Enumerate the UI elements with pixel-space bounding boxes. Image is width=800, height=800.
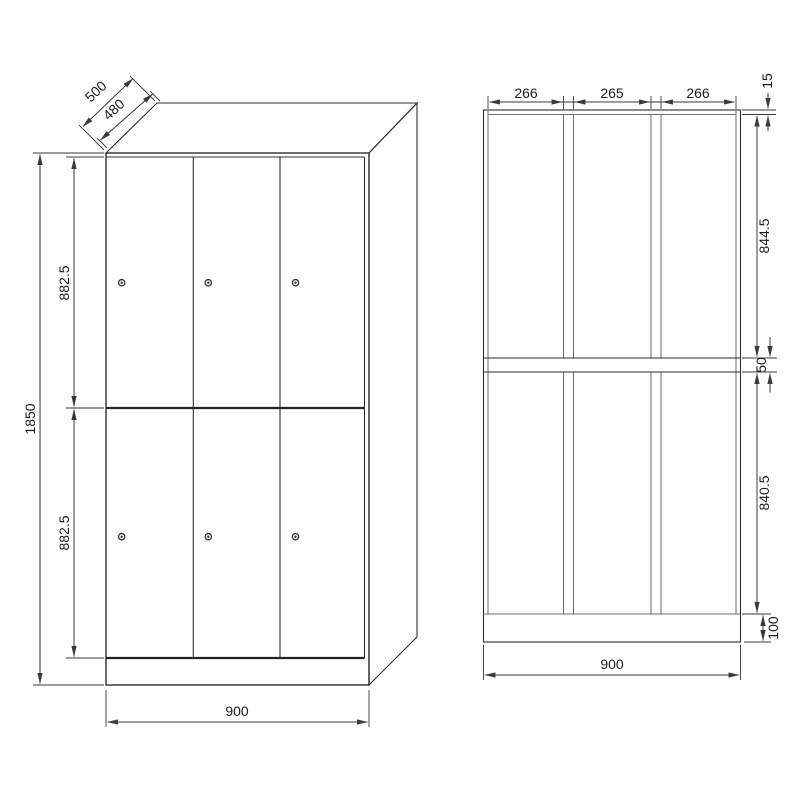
lock-icon — [205, 534, 211, 540]
lock-icon — [292, 534, 298, 540]
lock-icon — [119, 534, 125, 540]
dim-label-front-width: 900 — [225, 703, 249, 719]
dim-label-total-height: 1850 — [22, 403, 38, 434]
dim-front-width: 900 — [106, 690, 369, 727]
dim-label-top-panel: 15 — [759, 73, 775, 89]
lock-icon — [205, 280, 211, 286]
lock-icon — [292, 280, 298, 286]
side-face — [369, 103, 417, 685]
dim-depth-inner: 480 — [97, 91, 160, 148]
dim-label-section-width: 900 — [600, 656, 624, 672]
dim-label-lower-compartment: 840.5 — [756, 475, 772, 510]
dim-label-upper-door: 882.5 — [56, 265, 72, 300]
dim-lower-door-height: 882.5 — [56, 410, 104, 659]
dim-label-upper-compartment: 844.5 — [756, 218, 772, 253]
lock-icon — [119, 280, 125, 286]
dim-plinth: 100 — [744, 616, 781, 643]
front-view: 1850 882.5 882.5 500 480 — [22, 76, 417, 727]
dim-total-height: 1850 — [22, 153, 104, 685]
locker-technical-drawing: 1850 882.5 882.5 500 480 — [0, 0, 800, 800]
dim-section-width: 900 — [484, 645, 741, 680]
dim-lower-compartment: 840.5 — [742, 374, 772, 615]
dim-label-right-compartment: 266 — [686, 85, 710, 101]
dim-shelf: 50 — [742, 337, 777, 393]
dim-label-lower-door: 882.5 — [56, 515, 72, 550]
dim-label-shelf: 50 — [753, 357, 769, 373]
dim-upper-compartment: 844.5 — [756, 116, 772, 357]
dim-top-panel: 15 — [742, 73, 776, 131]
dim-label-plinth: 100 — [765, 616, 781, 640]
carcass-outline — [484, 110, 741, 642]
compartment-dividers — [564, 115, 662, 615]
dim-label-depth: 500 — [82, 77, 110, 105]
middle-shelf — [484, 358, 741, 372]
dim-upper-door-height: 882.5 — [56, 157, 104, 408]
dim-label-middle-compartment: 265 — [600, 85, 624, 101]
door-locks — [119, 280, 299, 540]
top-face — [106, 103, 417, 153]
front-face — [106, 153, 369, 685]
dim-label-left-compartment: 266 — [514, 85, 538, 101]
doors — [106, 157, 365, 658]
dim-compartment-widths: 266 265 266 — [488, 85, 736, 109]
section-view: 266 265 266 15 844.5 50 — [484, 73, 782, 680]
